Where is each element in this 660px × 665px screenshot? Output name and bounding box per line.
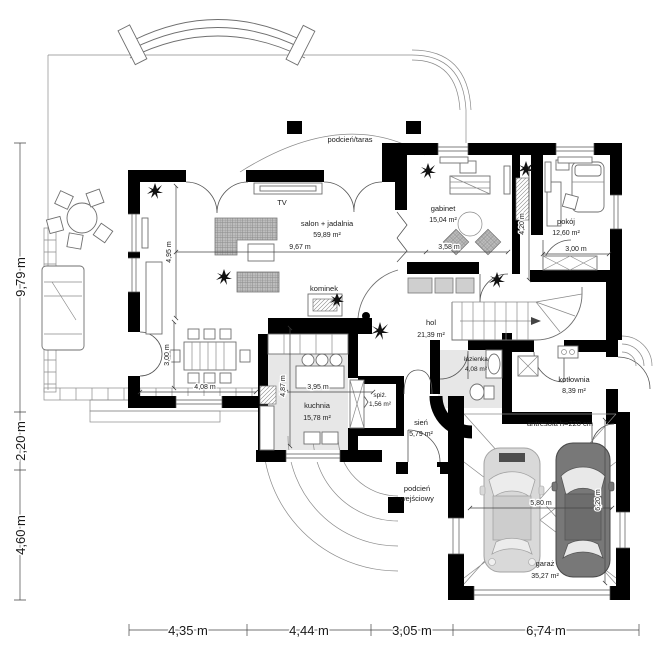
room-area-hol: 21,39 m² — [417, 332, 445, 339]
plant-icon — [371, 322, 389, 340]
room-area-kotlownia: 8,39 m² — [562, 388, 586, 395]
pergola-arch — [118, 20, 315, 66]
radiator — [142, 218, 148, 248]
dim-jadalnia-height: 3,00 m — [164, 344, 171, 366]
room-area-lazienka: 4,08 m² — [465, 366, 488, 373]
room-label-podcien-wejsciowy-1: podcień — [404, 484, 430, 493]
room-area-garaz: 35,27 m² — [531, 573, 559, 580]
room-label-hol: hol — [426, 318, 436, 327]
hall-closet — [350, 380, 364, 428]
dim-salon-height: 4,95 m — [166, 241, 173, 263]
room-label-pokoj: pokój — [557, 217, 575, 226]
dim-gabinet-width: 3,58 m — [438, 244, 460, 251]
room-area-kuchnia: 15,78 m² — [303, 415, 331, 422]
porch-column — [287, 121, 302, 134]
room-label-kominek: kominek — [310, 284, 338, 293]
dim-bottom-2: 4,44 m — [289, 623, 329, 638]
room-label-podcien-taras: podcień/taras — [327, 135, 372, 144]
plant-icon — [216, 269, 232, 285]
room-label-podcien-wejsciowy-2: wejściowy — [399, 494, 434, 503]
dishwasher — [260, 386, 276, 404]
dim-left-2: 2,20 m — [13, 421, 28, 461]
room-label-kuchnia: kuchnia — [304, 401, 331, 410]
room-label-spiz: spiż. — [373, 392, 387, 399]
dim-left-1: 9,79 m — [13, 257, 28, 297]
sideboard — [146, 262, 162, 334]
dim-bottom-3: 3,05 m — [392, 623, 432, 638]
room-label-antresola: antresola h=220 cm — [527, 419, 593, 428]
dim-bottom-4: 6,74 m — [526, 623, 566, 638]
room-label-lazienka: łazienka — [464, 356, 488, 363]
room-area-sien: 5,79 m² — [409, 431, 433, 438]
porch-column — [406, 121, 421, 134]
room-label-salon: salon + jadalnia — [301, 219, 354, 228]
terrace-table-set — [46, 189, 112, 249]
pergola-post-left — [118, 25, 147, 65]
dim-salon-width: 9,67 m — [289, 244, 311, 251]
wardrobe — [543, 256, 597, 270]
room-area-pokoj: 12,60 m² — [552, 230, 580, 237]
pergola-post-right — [286, 25, 315, 65]
sofa — [237, 272, 279, 292]
dining-table-set — [170, 329, 250, 383]
garage-door — [474, 586, 610, 600]
hol-post — [362, 312, 370, 320]
dim-kuchnia-width: 3,95 m — [307, 384, 329, 391]
dim-garaz-height: 6,20 m — [595, 489, 602, 511]
dim-garaz-width: 5,80 m — [530, 500, 552, 507]
sun-lounger — [42, 266, 84, 350]
hall-cabinets — [408, 278, 474, 293]
room-label-gabinet: gabinet — [431, 204, 457, 213]
tv-cabinet — [254, 183, 322, 194]
room-area-gabinet: 15,04 m² — [429, 217, 457, 224]
hol-arc — [358, 270, 398, 318]
stairs-direction-arrow — [531, 317, 541, 325]
floor-plan-page: 4,95 m 9,67 m 3,58 m 4,20 m 3,00 m 3,00 … — [0, 0, 660, 660]
dim-left-3: 4,60 m — [13, 515, 28, 555]
plant-icon — [147, 183, 163, 199]
room-label-garaz: garaż — [536, 559, 555, 568]
room-area-salon: 59,89 m² — [313, 232, 341, 239]
room-label-kotlownia: kotłownia — [558, 375, 590, 384]
staircase — [452, 287, 582, 340]
room-area-spiz: 1,56 m² — [369, 401, 392, 408]
coffee-table — [248, 244, 274, 261]
dim-pokoj-width: 3,00 m — [565, 246, 587, 253]
dim-kuchnia-height: 4,87 m — [280, 375, 287, 397]
dim-bottom-1: 4,35 m — [168, 623, 208, 638]
car-light — [480, 448, 544, 572]
plant-icon — [420, 163, 436, 179]
dim-pokoj-height: 4,20 m — [519, 213, 526, 235]
room-label-sien: sień — [414, 418, 428, 427]
floor-plan-drawing: 4,95 m 9,67 m 3,58 m 4,20 m 3,00 m 3,00 … — [0, 0, 660, 660]
dim-jadalnia-width: 4,08 m — [194, 384, 216, 391]
room-label-tv: TV — [277, 198, 287, 207]
